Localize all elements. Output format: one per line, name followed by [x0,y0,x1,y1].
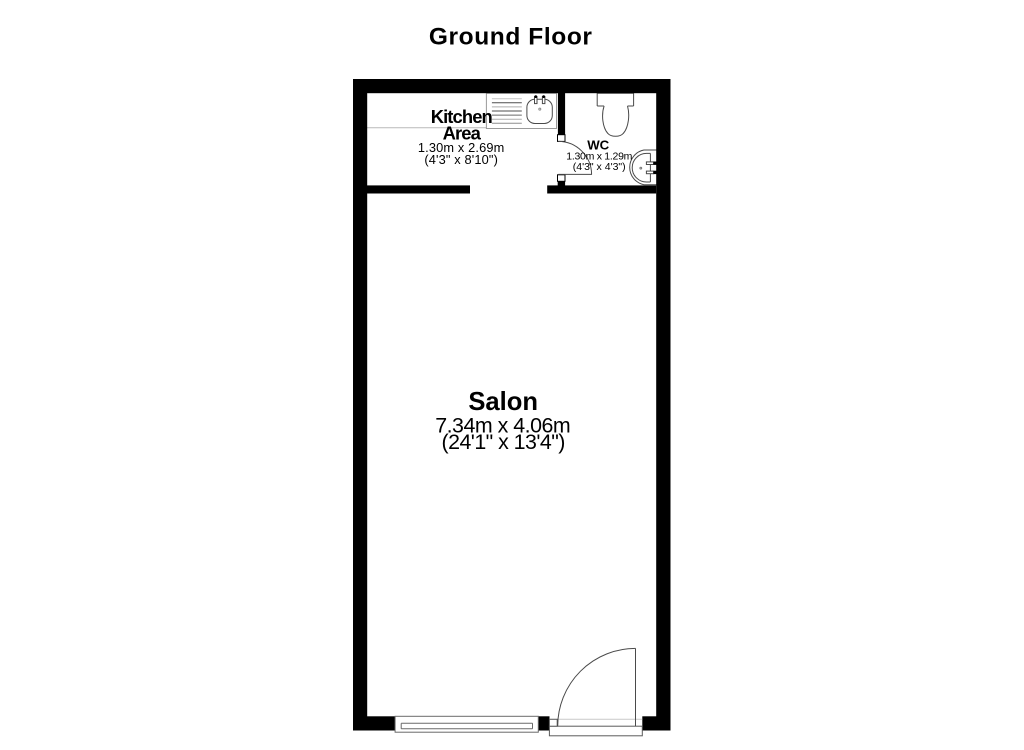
svg-text:(4'3" x 8'10"): (4'3" x 8'10") [424,152,498,167]
svg-text:(4'3" x 4'3"): (4'3" x 4'3") [573,161,626,173]
svg-text:Ground Floor: Ground Floor [429,24,593,51]
svg-text:Salon: Salon [468,388,538,416]
svg-text:(24'1" x 13'4"): (24'1" x 13'4") [442,430,565,454]
